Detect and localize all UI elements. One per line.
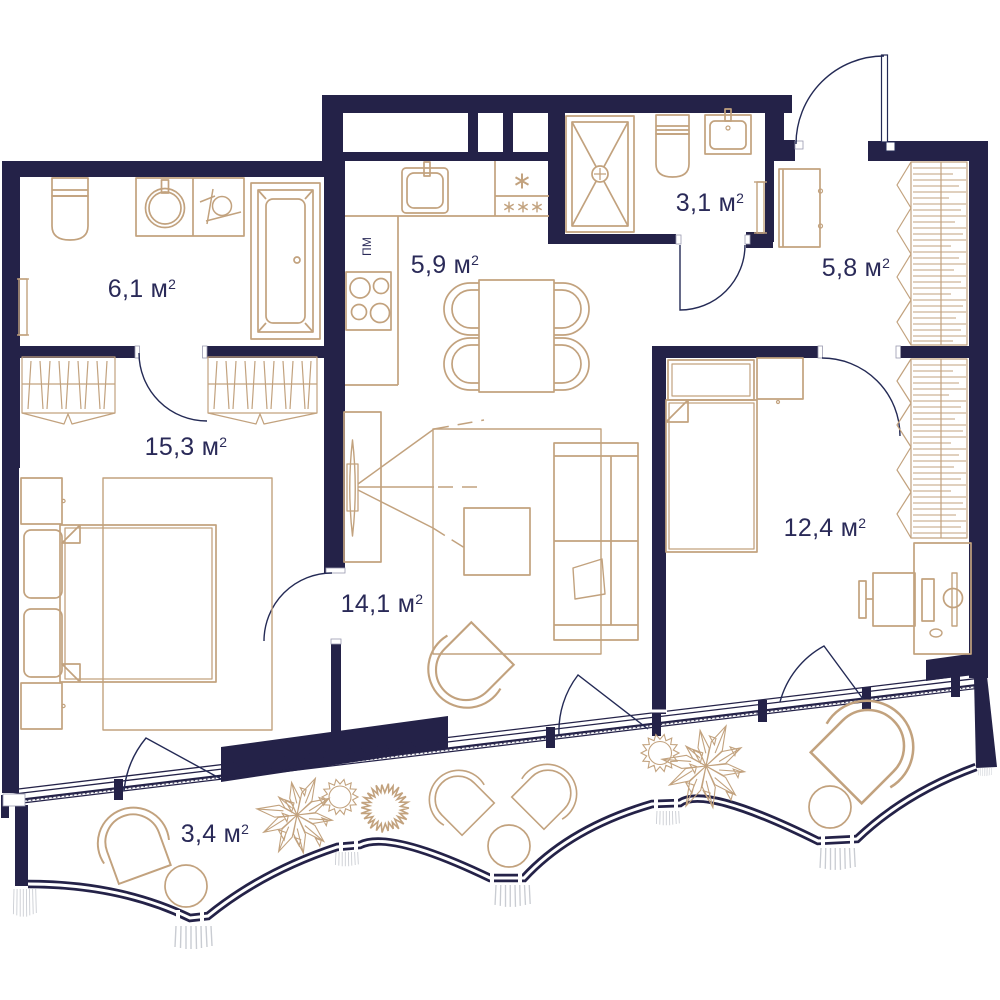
svg-text:6,1 м2: 6,1 м2: [108, 275, 176, 303]
svg-text:3,4 м2: 3,4 м2: [181, 820, 249, 848]
svg-text:3,1 м2: 3,1 м2: [676, 189, 744, 217]
svg-text:5,9 м2: 5,9 м2: [411, 251, 479, 279]
svg-text:ПМ: ПМ: [360, 237, 374, 256]
svg-text:14,1 м2: 14,1 м2: [341, 590, 424, 618]
svg-text:12,4 м2: 12,4 м2: [784, 514, 867, 542]
svg-text:5,8 м2: 5,8 м2: [822, 254, 890, 282]
svg-text:15,3 м2: 15,3 м2: [145, 433, 228, 461]
